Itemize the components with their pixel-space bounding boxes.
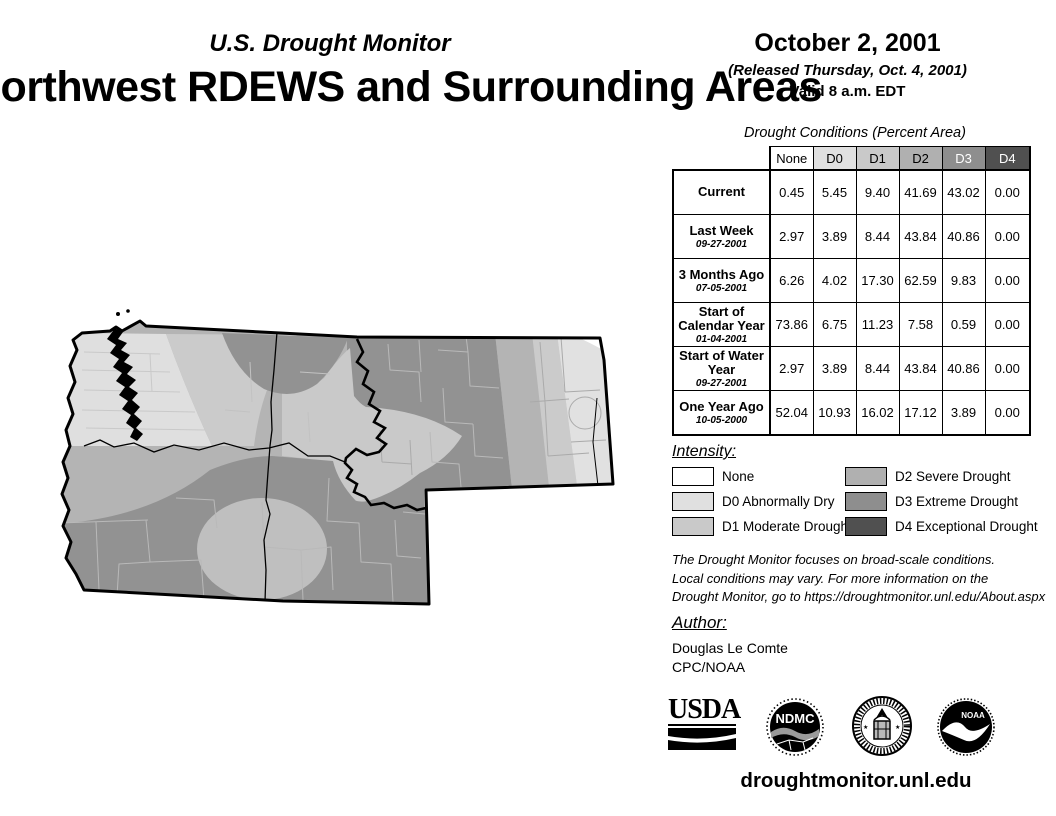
row-label: Last Week (674, 224, 769, 238)
col-header-d0: D0 (813, 147, 856, 171)
disclaimer-line: The Drought Monitor focuses on broad-sca… (672, 551, 1045, 570)
cell-value: 0.45 (770, 170, 813, 215)
disclaimer-line: Local conditions may vary. For more info… (672, 570, 1045, 589)
cell-value: 0.00 (985, 347, 1030, 391)
legend-item-d1: D1 Moderate Drought (672, 517, 852, 537)
cell-value: 52.04 (770, 391, 813, 436)
legend-label: D1 Moderate Drought (722, 519, 852, 534)
row-label: Current (674, 185, 769, 199)
cell-value: 8.44 (856, 347, 899, 391)
cell-value: 2.97 (770, 215, 813, 259)
usda-swoosh (668, 726, 736, 752)
table-title: Drought Conditions (Percent Area) (690, 125, 1020, 141)
region-title: Northwest RDEWS and Surrounding Areas (0, 63, 822, 112)
cell-value: 40.86 (942, 347, 985, 391)
legend-swatch-none (672, 467, 714, 486)
legend-swatch-d1 (672, 517, 714, 536)
cell-value: 62.59 (899, 259, 942, 303)
row-date: 09-27-2001 (674, 378, 769, 389)
legend-swatch-d0 (672, 492, 714, 511)
noaa-logo-text: NOAA (961, 711, 985, 720)
map-date: October 2, 2001 (690, 28, 1005, 58)
legend-swatch-d2 (845, 467, 887, 486)
doc-seal-star: ★ (863, 724, 868, 731)
doc-seal-star: ★ (895, 724, 900, 731)
cell-value: 3.89 (813, 215, 856, 259)
legend-label: D0 Abnormally Dry (722, 494, 835, 509)
noaa-logo: NOAA (936, 696, 996, 758)
cell-value: 43.02 (942, 170, 985, 215)
table-row: One Year Ago10-05-2000 52.04 10.93 16.02… (673, 391, 1030, 436)
department-of-commerce-seal: ★ ★ (851, 694, 913, 758)
author-title: Author: (672, 613, 727, 633)
legend-item-none: None (672, 467, 754, 487)
legend-label: D4 Exceptional Drought (895, 519, 1038, 534)
row-date: 01-04-2001 (674, 334, 769, 345)
cell-value: 2.97 (770, 347, 813, 391)
cell-value: 7.58 (899, 303, 942, 347)
cell-value: 41.69 (899, 170, 942, 215)
table-row: 3 Months Ago07-05-2001 6.26 4.02 17.30 6… (673, 259, 1030, 303)
legend-label: D2 Severe Drought (895, 469, 1011, 484)
col-header-d2: D2 (899, 147, 942, 171)
drought-map (48, 298, 632, 620)
cell-value: 0.00 (985, 391, 1030, 436)
cell-value: 0.00 (985, 303, 1030, 347)
cell-value: 17.30 (856, 259, 899, 303)
cell-value: 73.86 (770, 303, 813, 347)
cell-value: 6.75 (813, 303, 856, 347)
table-row: Start of Calendar Year01-04-2001 73.86 6… (673, 303, 1030, 347)
legend-item-d0: D0 Abnormally Dry (672, 492, 835, 512)
cell-value: 9.40 (856, 170, 899, 215)
cell-value: 4.02 (813, 259, 856, 303)
author-name: Douglas Le Comte (672, 640, 788, 656)
table-row: Last Week09-27-2001 2.97 3.89 8.44 43.84… (673, 215, 1030, 259)
cell-value: 5.45 (813, 170, 856, 215)
col-header-d4: D4 (985, 147, 1030, 171)
author-org: CPC/NOAA (672, 659, 745, 675)
cell-value: 8.44 (856, 215, 899, 259)
cell-value: 9.83 (942, 259, 985, 303)
cell-value: 3.89 (813, 347, 856, 391)
cell-value: 3.89 (942, 391, 985, 436)
table-row: Start of Water Year09-27-2001 2.97 3.89 … (673, 347, 1030, 391)
disclaimer: The Drought Monitor focuses on broad-sca… (672, 551, 1045, 607)
row-date: 07-05-2001 (674, 283, 769, 294)
cell-value: 40.86 (942, 215, 985, 259)
drought-monitor-page: { "header": { "monitor_title": "U.S. Dro… (0, 0, 1056, 816)
legend-swatch-d4 (845, 517, 887, 536)
disclaimer-line: Drought Monitor, go to https://droughtmo… (672, 588, 1045, 607)
col-header-none: None (770, 147, 813, 171)
legend-item-d3: D3 Extreme Drought (845, 492, 1018, 512)
island-mark (126, 309, 130, 313)
cell-value: 0.00 (985, 215, 1030, 259)
footer-url: droughtmonitor.unl.edu (700, 769, 1012, 793)
row-label: Start of Calendar Year (674, 305, 769, 333)
legend-label: D3 Extreme Drought (895, 494, 1018, 509)
row-date: 09-27-2001 (674, 239, 769, 250)
row-label: 3 Months Ago (674, 268, 769, 282)
legend-title: Intensity: (672, 443, 736, 461)
cell-value: 16.02 (856, 391, 899, 436)
col-header-d3: D3 (942, 147, 985, 171)
cell-value: 0.00 (985, 170, 1030, 215)
table-header-row: None D0 D1 D2 D3 D4 (673, 147, 1030, 171)
cell-value: 11.23 (856, 303, 899, 347)
usda-logo: USDA (668, 696, 736, 757)
ndmc-logo: NDMC (765, 696, 825, 758)
usda-logo-text: USDA (668, 696, 736, 726)
drought-shading (48, 298, 632, 620)
legend-item-d4: D4 Exceptional Drought (845, 517, 1038, 537)
row-label: Start of Water Year (674, 349, 769, 377)
cell-value: 17.12 (899, 391, 942, 436)
cell-value: 0.59 (942, 303, 985, 347)
drought-conditions-table: None D0 D1 D2 D3 D4 Current 0.45 5.45 9.… (672, 146, 1031, 436)
legend-item-d2: D2 Severe Drought (845, 467, 1011, 487)
legend-label: None (722, 469, 754, 484)
table-row: Current 0.45 5.45 9.40 41.69 43.02 0.00 (673, 170, 1030, 215)
row-date: 10-05-2000 (674, 415, 769, 426)
col-header-d1: D1 (856, 147, 899, 171)
monitor-title: U.S. Drought Monitor (0, 30, 660, 58)
cell-value: 10.93 (813, 391, 856, 436)
cell-value: 0.00 (985, 259, 1030, 303)
island-mark (116, 312, 120, 316)
ndmc-logo-text: NDMC (776, 711, 816, 726)
legend-swatch-d3 (845, 492, 887, 511)
row-label: One Year Ago (674, 400, 769, 414)
cell-value: 6.26 (770, 259, 813, 303)
cell-value: 43.84 (899, 215, 942, 259)
cell-value: 43.84 (899, 347, 942, 391)
